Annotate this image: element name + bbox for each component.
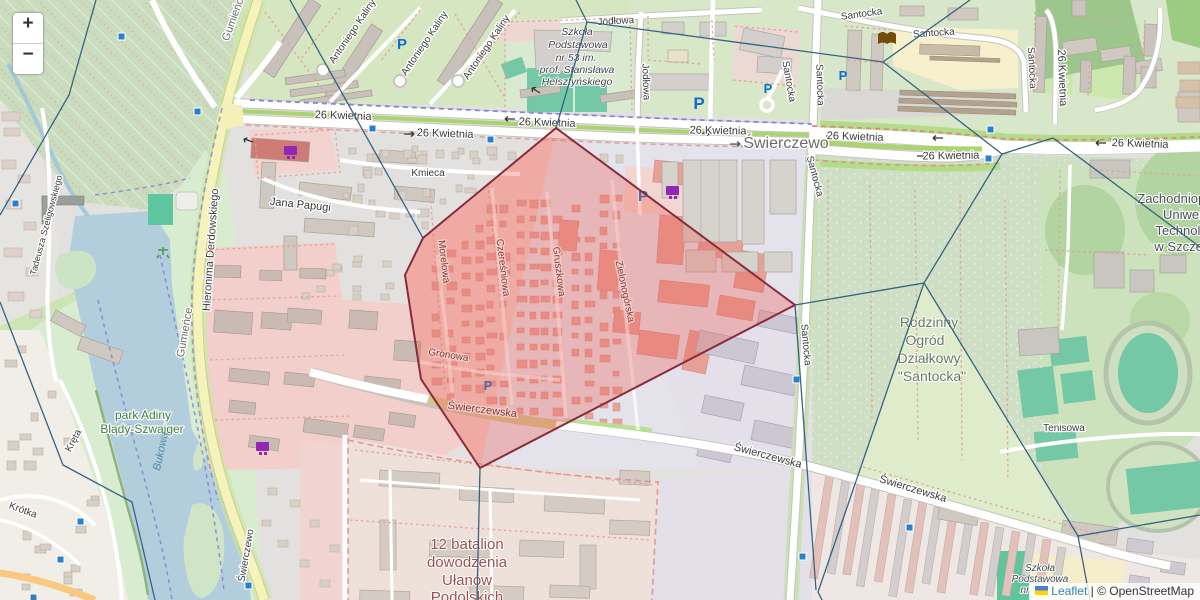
svg-text:Helsztyńskiego: Helsztyńskiego bbox=[542, 76, 613, 88]
svg-text:26 Kwietnia: 26 Kwietnia bbox=[518, 116, 576, 130]
svg-text:Podstawowa: Podstawowa bbox=[548, 39, 608, 51]
svg-text:Santocka: Santocka bbox=[1025, 47, 1038, 90]
svg-text:P: P bbox=[839, 68, 848, 83]
svg-text:26 Kwietnia: 26 Kwietnia bbox=[826, 130, 884, 144]
svg-text:Ogród: Ogród bbox=[906, 332, 945, 348]
svg-text:Działkowy: Działkowy bbox=[897, 350, 960, 366]
svg-text:Blądy-Szwajger: Blądy-Szwajger bbox=[100, 422, 183, 436]
svg-text:Świerczewo: Świerczewo bbox=[743, 133, 828, 152]
svg-text:Ułanów: Ułanów bbox=[442, 572, 492, 589]
svg-text:Jodłowa: Jodłowa bbox=[639, 63, 651, 100]
svg-text:26 Kwietnia: 26 Kwietnia bbox=[1055, 49, 1069, 107]
svg-text:Podolskich: Podolskich bbox=[431, 589, 504, 600]
svg-text:"Santocka": "Santocka" bbox=[898, 368, 966, 384]
svg-text:26 Kwietnia: 26 Kwietnia bbox=[922, 149, 980, 162]
svg-text:Szkoła: Szkoła bbox=[1025, 563, 1055, 574]
svg-text:26 Kwietnia: 26 Kwietnia bbox=[314, 109, 372, 123]
svg-text:Uniwersytet: Uniwersytet bbox=[1163, 207, 1200, 222]
svg-text:prof. Stanisława: prof. Stanisława bbox=[539, 64, 615, 76]
svg-text:12 batalion: 12 batalion bbox=[430, 536, 503, 553]
svg-text:Szkoła: Szkoła bbox=[561, 26, 593, 38]
svg-text:P: P bbox=[397, 36, 407, 53]
svg-text:park Adiny: park Adiny bbox=[115, 408, 171, 422]
svg-text:Santocka: Santocka bbox=[813, 64, 825, 106]
svg-text:P: P bbox=[693, 94, 704, 113]
svg-text:Zachodniopomorski: Zachodniopomorski bbox=[1137, 191, 1200, 206]
svg-text:26 Kwietnia: 26 Kwietnia bbox=[690, 125, 748, 138]
svg-text:26 Kwietnia: 26 Kwietnia bbox=[416, 127, 474, 141]
svg-text:dowodzenia: dowodzenia bbox=[427, 554, 508, 571]
svg-text:26 Kwietnia: 26 Kwietnia bbox=[1111, 137, 1169, 151]
svg-text:Tenisowa: Tenisowa bbox=[1043, 423, 1085, 434]
svg-text:Kmieca: Kmieca bbox=[411, 168, 445, 179]
